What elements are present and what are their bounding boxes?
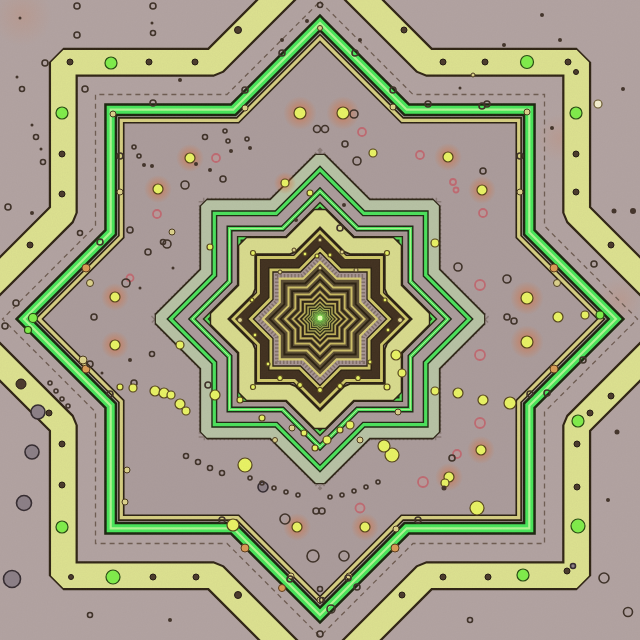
fractal-star-artwork	[0, 0, 640, 640]
film-grain	[0, 0, 640, 640]
screenshot-root	[0, 0, 640, 640]
